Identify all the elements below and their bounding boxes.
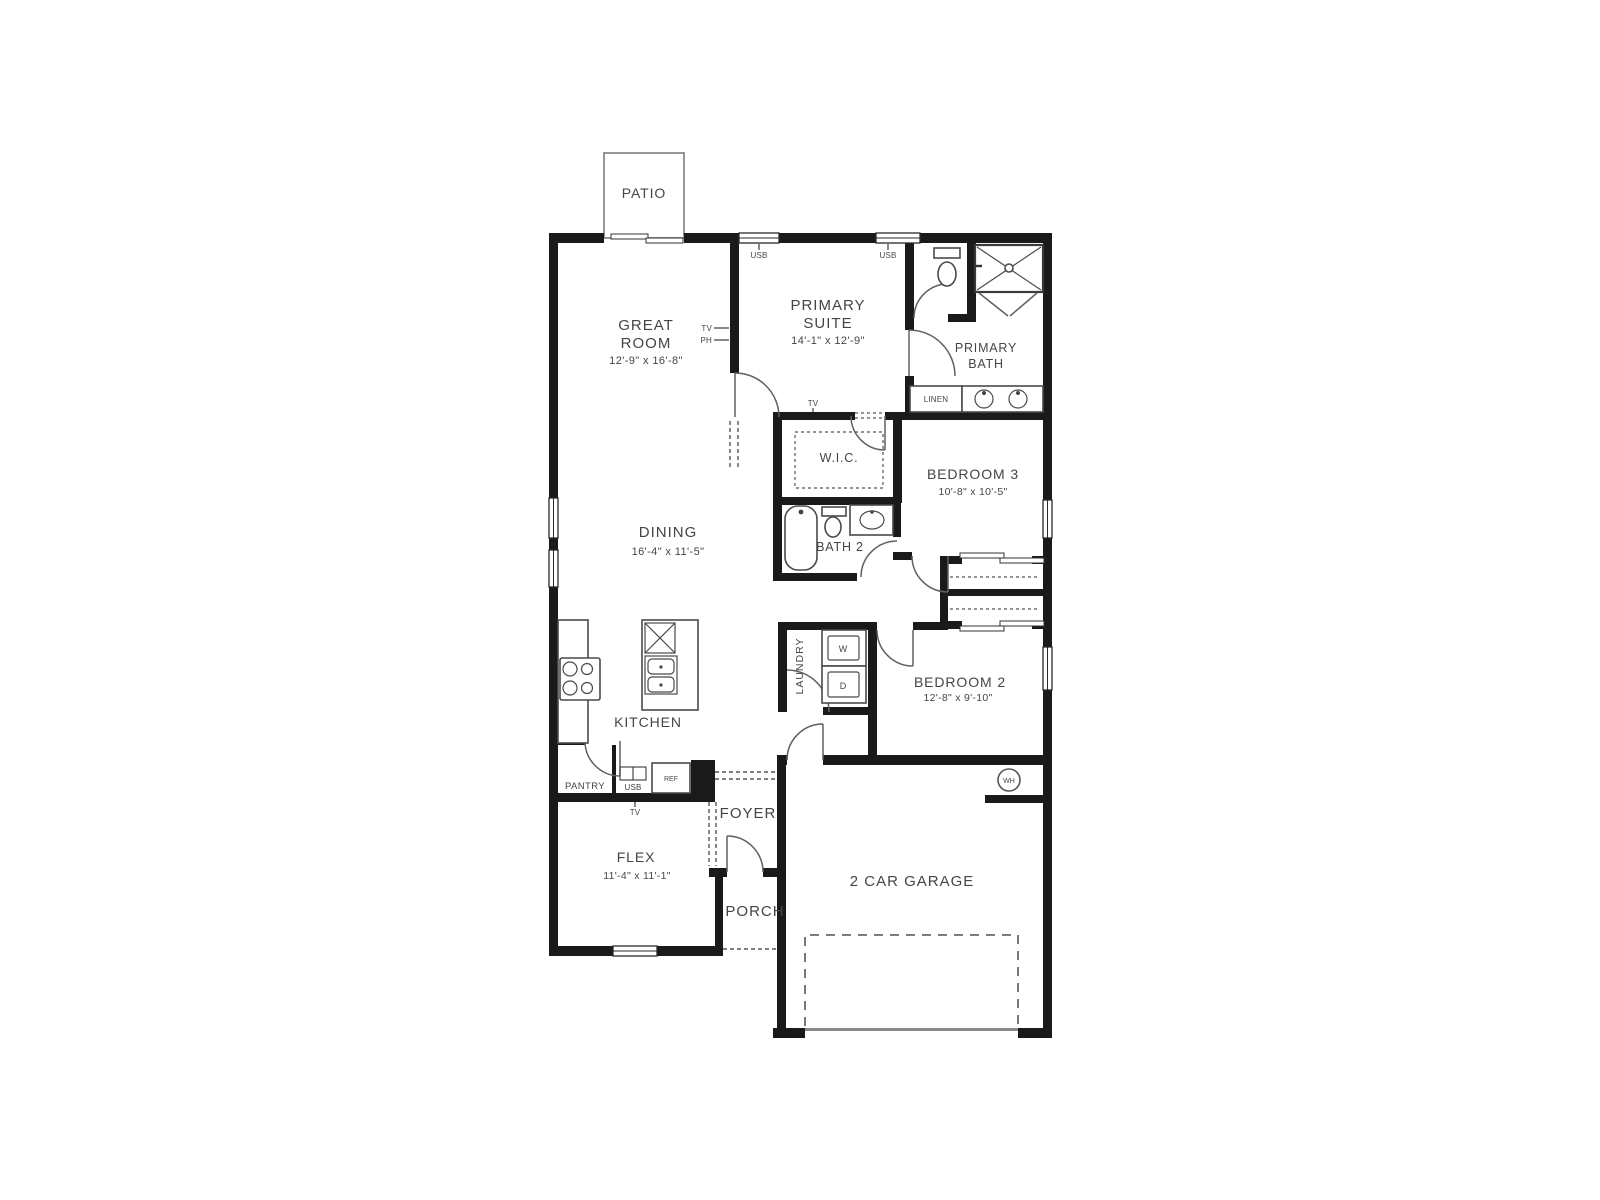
primary-suite-door-arc xyxy=(735,373,779,417)
primary-bath-label-2: BATH xyxy=(968,357,1004,371)
wic-door-arc xyxy=(851,416,885,450)
pantry-label: PANTRY xyxy=(565,781,605,792)
primary-bath-door-arc xyxy=(909,330,955,376)
ref-label: REF xyxy=(664,776,678,783)
garage-entry-door-arc xyxy=(787,724,823,760)
tub-faucet xyxy=(799,510,804,515)
laundry-fixtures xyxy=(822,630,866,703)
great-room-dims: 12'-9" x 16'-8" xyxy=(609,355,683,367)
toilet-tank xyxy=(934,248,960,258)
bedroom3-label: BEDROOM 3 xyxy=(927,466,1019,482)
laundry-label: LAUNDRY xyxy=(794,638,806,695)
usb-label-2: USB xyxy=(879,251,896,260)
dryer-label: D xyxy=(840,681,847,691)
primary-suite-label-2: SUITE xyxy=(803,315,852,332)
kitchen-island xyxy=(642,620,698,710)
usb-label-1: USB xyxy=(750,251,767,260)
bathtub xyxy=(785,506,817,570)
flex-label: FLEX xyxy=(617,849,656,865)
porch-label: PORCH xyxy=(725,903,784,920)
garage-apron-outline xyxy=(805,935,1018,1026)
linen-label: LINEN xyxy=(924,395,949,404)
toilet-bowl xyxy=(825,517,841,537)
toilet-bowl xyxy=(938,262,956,286)
bedroom2-door-arc xyxy=(877,630,913,666)
water-heater: WH xyxy=(998,769,1020,791)
foyer-label: FOYER xyxy=(720,805,777,822)
shower-door-panel xyxy=(979,293,1008,316)
bedroom2-label: BEDROOM 2 xyxy=(914,674,1006,690)
garage-label: 2 CAR GARAGE xyxy=(850,873,975,890)
primary-bath-fixtures xyxy=(910,245,1043,412)
water-closet-door-arc xyxy=(914,284,948,318)
bedroom2-dims: 12'-8" x 9'-10" xyxy=(923,692,992,704)
bedroom3-dims: 10'-8" x 10'-5" xyxy=(938,486,1007,498)
tv-label-flex: TV xyxy=(630,808,641,817)
kitchen-fixtures xyxy=(558,620,698,793)
washer-label: W xyxy=(839,644,848,654)
bath2-label: BATH 2 xyxy=(816,540,864,554)
bath2-door-arc xyxy=(861,541,897,577)
usb-label-3: USB xyxy=(624,783,641,792)
shower-door-panel xyxy=(1010,293,1037,316)
great-room-label-2: ROOM xyxy=(621,335,672,352)
bath2-vanity xyxy=(850,505,893,535)
flex-dims: 11'-4" x 11'-1" xyxy=(603,870,671,882)
patio-label: PATIO xyxy=(622,185,666,201)
dining-label: DINING xyxy=(639,524,698,541)
floorplan-drawing: WH PATIO GREAT ROOM 12'-9" x 16'-8" PRIM… xyxy=(0,0,1600,1200)
primary-vanity xyxy=(962,386,1043,412)
front-door-arc xyxy=(727,836,763,872)
wic-label: W.I.C. xyxy=(820,451,859,465)
floorplan-page: WH PATIO GREAT ROOM 12'-9" x 16'-8" PRIM… xyxy=(0,0,1600,1200)
ph-label-great-room: PH xyxy=(700,336,712,345)
shower-drain xyxy=(1005,264,1013,272)
wh-label: WH xyxy=(1003,778,1015,785)
tv-label-primary: TV xyxy=(808,399,819,408)
great-room-label-1: GREAT xyxy=(618,317,674,334)
primary-suite-label-1: PRIMARY xyxy=(790,297,865,314)
toilet-tank xyxy=(822,507,846,516)
primary-suite-dims: 14'-1" x 12'-9" xyxy=(791,335,865,347)
garage-door xyxy=(805,1028,1018,1031)
bath2-fixtures xyxy=(785,505,893,570)
kitchen-label: KITCHEN xyxy=(614,714,682,730)
primary-bath-label-1: PRIMARY xyxy=(955,341,1017,355)
dining-dims: 16'-4" x 11'-5" xyxy=(632,546,705,558)
tv-label-great-room: TV xyxy=(701,324,712,333)
